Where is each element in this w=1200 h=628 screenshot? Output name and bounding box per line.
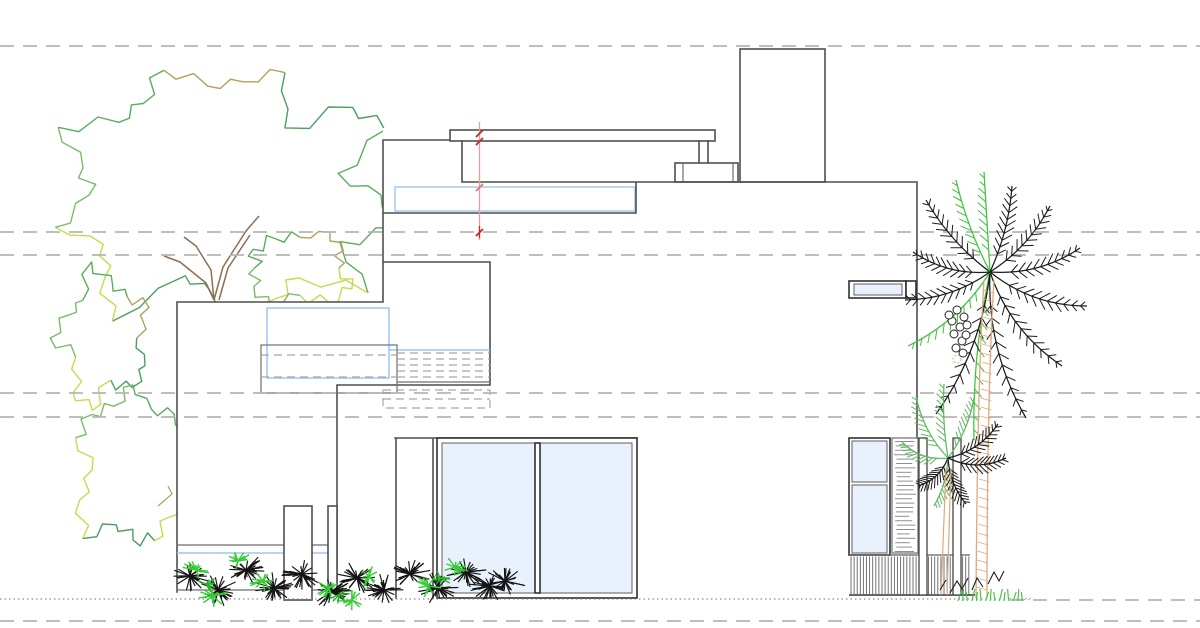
- stair-hidden-treads: [383, 353, 490, 399]
- wood-slat-texture: [894, 442, 916, 552]
- porch-pilaster: [328, 506, 337, 590]
- porch-post-left: [919, 438, 927, 595]
- house-elevation: [177, 49, 975, 600]
- elevation-canvas: [0, 0, 1200, 628]
- elevation-drawing: [0, 0, 1200, 628]
- wood-slat-panel: [892, 438, 918, 553]
- chimney: [740, 49, 825, 182]
- porch-window-bottom-pane: [852, 485, 887, 553]
- pergola-slab: [450, 130, 715, 141]
- wall-mask-upper: [383, 128, 500, 302]
- clerestory-side-return: [906, 281, 916, 298]
- rooftop-canopy-box: [675, 163, 738, 182]
- porch-window-top-pane: [852, 441, 887, 482]
- clerestory-glazing: [854, 284, 902, 295]
- pergola-legs: [699, 141, 708, 163]
- sliding-door-mullion: [535, 443, 540, 593]
